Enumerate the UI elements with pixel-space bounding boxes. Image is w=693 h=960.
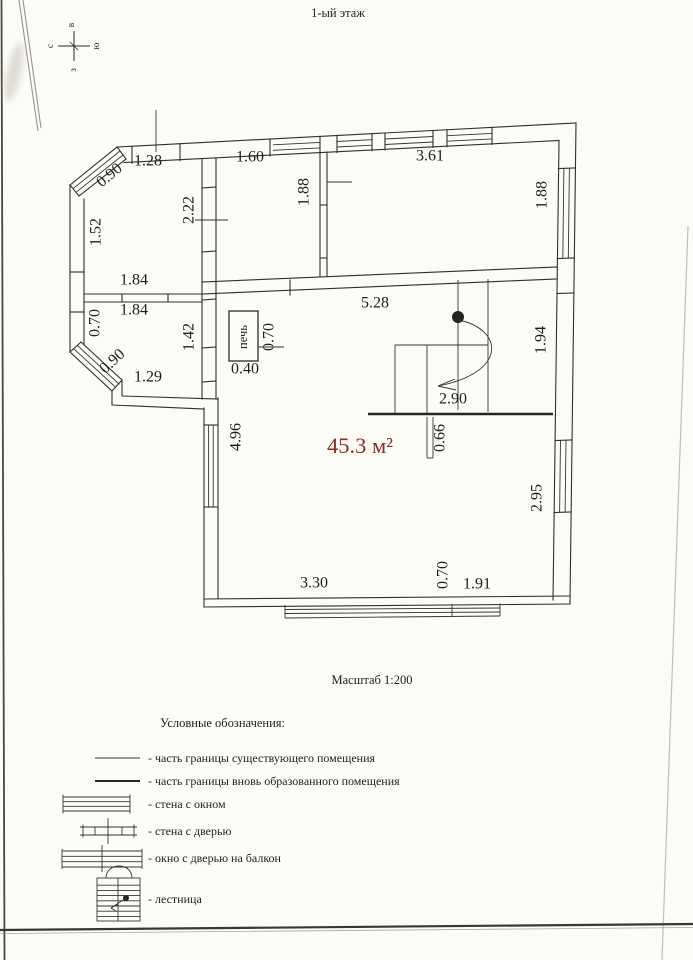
legend-item-label: - стена с окном: [148, 797, 226, 811]
legend-item-label: - окно с дверью на балкон: [148, 851, 282, 865]
dimension-label: 3.30: [300, 575, 328, 592]
dimension-label: 1.52: [88, 218, 105, 246]
page-title: 1-ый этаж: [311, 6, 365, 20]
room-area-label: 45.3 м²: [327, 433, 393, 458]
dimension-label: 0.70: [261, 323, 278, 351]
dimension-label: 1.88: [296, 178, 313, 206]
dimension-label: 1.84: [120, 272, 148, 289]
dimension-label: 2.22: [181, 196, 198, 224]
dimension-label: 4.96: [228, 423, 245, 451]
wall-with-window-symbol: [63, 795, 130, 814]
dimension-label: 1.28: [134, 153, 162, 170]
legend-item-label: - стена с дверью: [148, 824, 231, 838]
floor-plan-drawing: 1-ый этаж в с ю з: [0, 0, 693, 960]
dimension-label: 1.60: [236, 149, 264, 166]
compass-north-letter: с: [46, 44, 56, 48]
compass-east-letter: в: [67, 22, 77, 27]
dimension-label: 1.42: [181, 323, 198, 351]
dimension-label: 2.95: [529, 484, 546, 512]
dimension-label: 0.70: [87, 309, 104, 337]
dimension-label: 0.40: [231, 361, 259, 378]
compass-rose: в с ю з: [46, 22, 102, 72]
stove-label: печь: [236, 325, 250, 349]
legend-item-label: - часть границы существующего помещения: [148, 751, 376, 765]
dimension-label: 0.90: [96, 346, 128, 378]
dimension-label: 5.28: [361, 295, 389, 312]
scan-artifacts: [0, 0, 693, 960]
interior-walls: [84, 152, 557, 399]
legend-item-label: - часть границы вновь образованного поме…: [148, 774, 400, 788]
staircase-symbol: [97, 866, 140, 921]
stair-direction-arrow: [438, 320, 492, 390]
dimension-label: 3.61: [416, 148, 444, 165]
compass-south-letter: ю: [92, 42, 102, 49]
window-with-balcony-door-symbol: [62, 845, 142, 872]
dimension-label: 1.88: [534, 181, 551, 209]
legend-item-label: - лестница: [148, 892, 202, 906]
legend: Условные обозначения: - часть границы су…: [62, 716, 400, 921]
wall-with-door-symbol: [80, 818, 137, 844]
dimension-label: 0.66: [432, 424, 449, 452]
compass-west-letter: з: [69, 68, 79, 72]
dimension-label: 0.70: [435, 561, 452, 589]
dimension-labels: 1.280.901.603.611.881.882.221.521.841.84…: [87, 148, 551, 593]
dimension-label: 0.90: [93, 160, 125, 191]
exterior-walls: [70, 123, 576, 607]
legend-heading: Условные обозначения:: [160, 716, 285, 730]
scale-note: Масштаб 1:200: [332, 673, 413, 687]
dimension-label: 1.91: [463, 576, 491, 593]
dimension-label: 1.29: [134, 369, 162, 386]
dimension-label: 1.94: [533, 326, 550, 354]
dimension-label: 2.90: [439, 391, 467, 408]
scanned-floor-plan-page: 1-ый этаж в с ю з: [0, 0, 693, 960]
dimension-label: 1.84: [120, 302, 148, 319]
staircase: [368, 279, 553, 458]
